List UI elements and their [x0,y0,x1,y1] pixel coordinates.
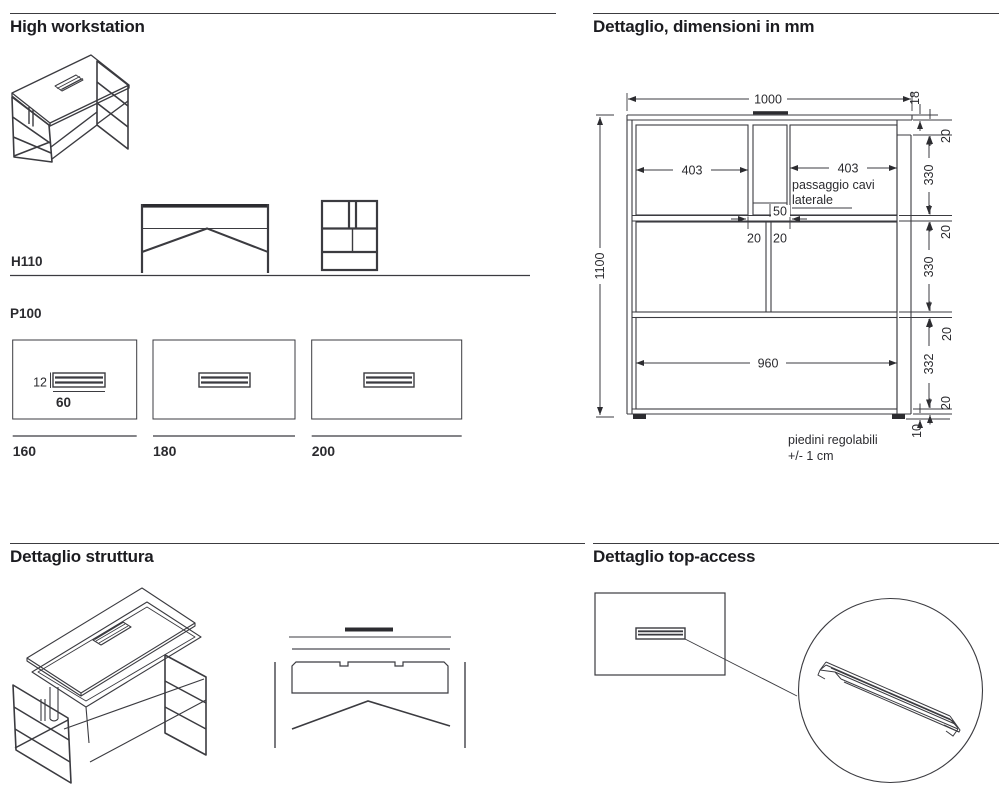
top-access-magnifier [799,599,983,783]
structure-detail-drawing [0,570,580,789]
dim-slot-width: 50 [773,205,787,219]
dimension-lines [596,93,952,430]
dim-shelf-right: 403 [838,162,859,176]
side-view-sketch [322,201,377,270]
dim-gap-c: 20 [940,327,954,341]
cable-note-line1: passaggio cavi [792,178,875,192]
iso-desk-sketch [12,55,129,162]
top-access-detail-drawing [580,570,1002,789]
width-label-160: 160 [13,443,37,459]
section-title-dettaglio-dimensioni: Dettaglio, dimensioni in mm [593,13,999,37]
section-title-dettaglio-top-access: Dettaglio top-access [593,543,999,567]
width-label-200: 200 [312,443,336,459]
cabinet-structure [627,111,912,419]
cable-tray-iso-sketch [818,662,960,736]
plan-views [13,340,462,436]
exploded-front-sketch [275,628,465,749]
slot-height-dim: 12 [33,376,47,390]
top-access-plan [595,593,797,696]
feet-note-line1: piedini regolabili [788,433,878,447]
dim-gap-b: 20 [939,225,953,239]
slot-width-dim: 60 [56,395,71,410]
front-view-sketch [142,204,268,273]
dim-row3: 332 [922,354,936,375]
dim-total-height: 1100 [593,253,607,280]
cable-note-line2: laterale [792,193,833,207]
exploded-iso-sketch [13,588,206,783]
high-workstation-drawing: H110 P100 12 60 160 180 200 [0,40,580,540]
dim-bottom-width: 960 [758,357,779,371]
datasheet-page: High workstation Dettaglio, dimensioni i… [0,0,1002,789]
dimension-text-backgrounds [592,91,936,383]
dim-feet-height: 10 [910,424,924,438]
width-label-180: 180 [153,443,177,459]
dim-gap-a: 20 [939,129,953,143]
dim-shelf-left: 403 [682,164,703,178]
dim-wall-left: 20 [747,232,761,246]
dim-row2: 330 [922,257,936,278]
dim-gap-d: 20 [939,396,953,410]
section-title-high-workstation: High workstation [10,13,556,37]
feet-note-line2: +/- 1 cm [788,449,834,463]
height-label: H110 [11,254,43,269]
dim-total-width: 1000 [754,93,782,107]
depth-label: P100 [10,306,42,321]
dim-top-thickness: 18 [908,91,922,105]
dimension-drawing: 1000 1100 403 403 passaggio cavi lateral… [580,40,1002,540]
section-title-dettaglio-struttura: Dettaglio struttura [10,543,585,567]
dim-row1: 330 [922,165,936,186]
dim-wall-right: 20 [773,232,787,246]
